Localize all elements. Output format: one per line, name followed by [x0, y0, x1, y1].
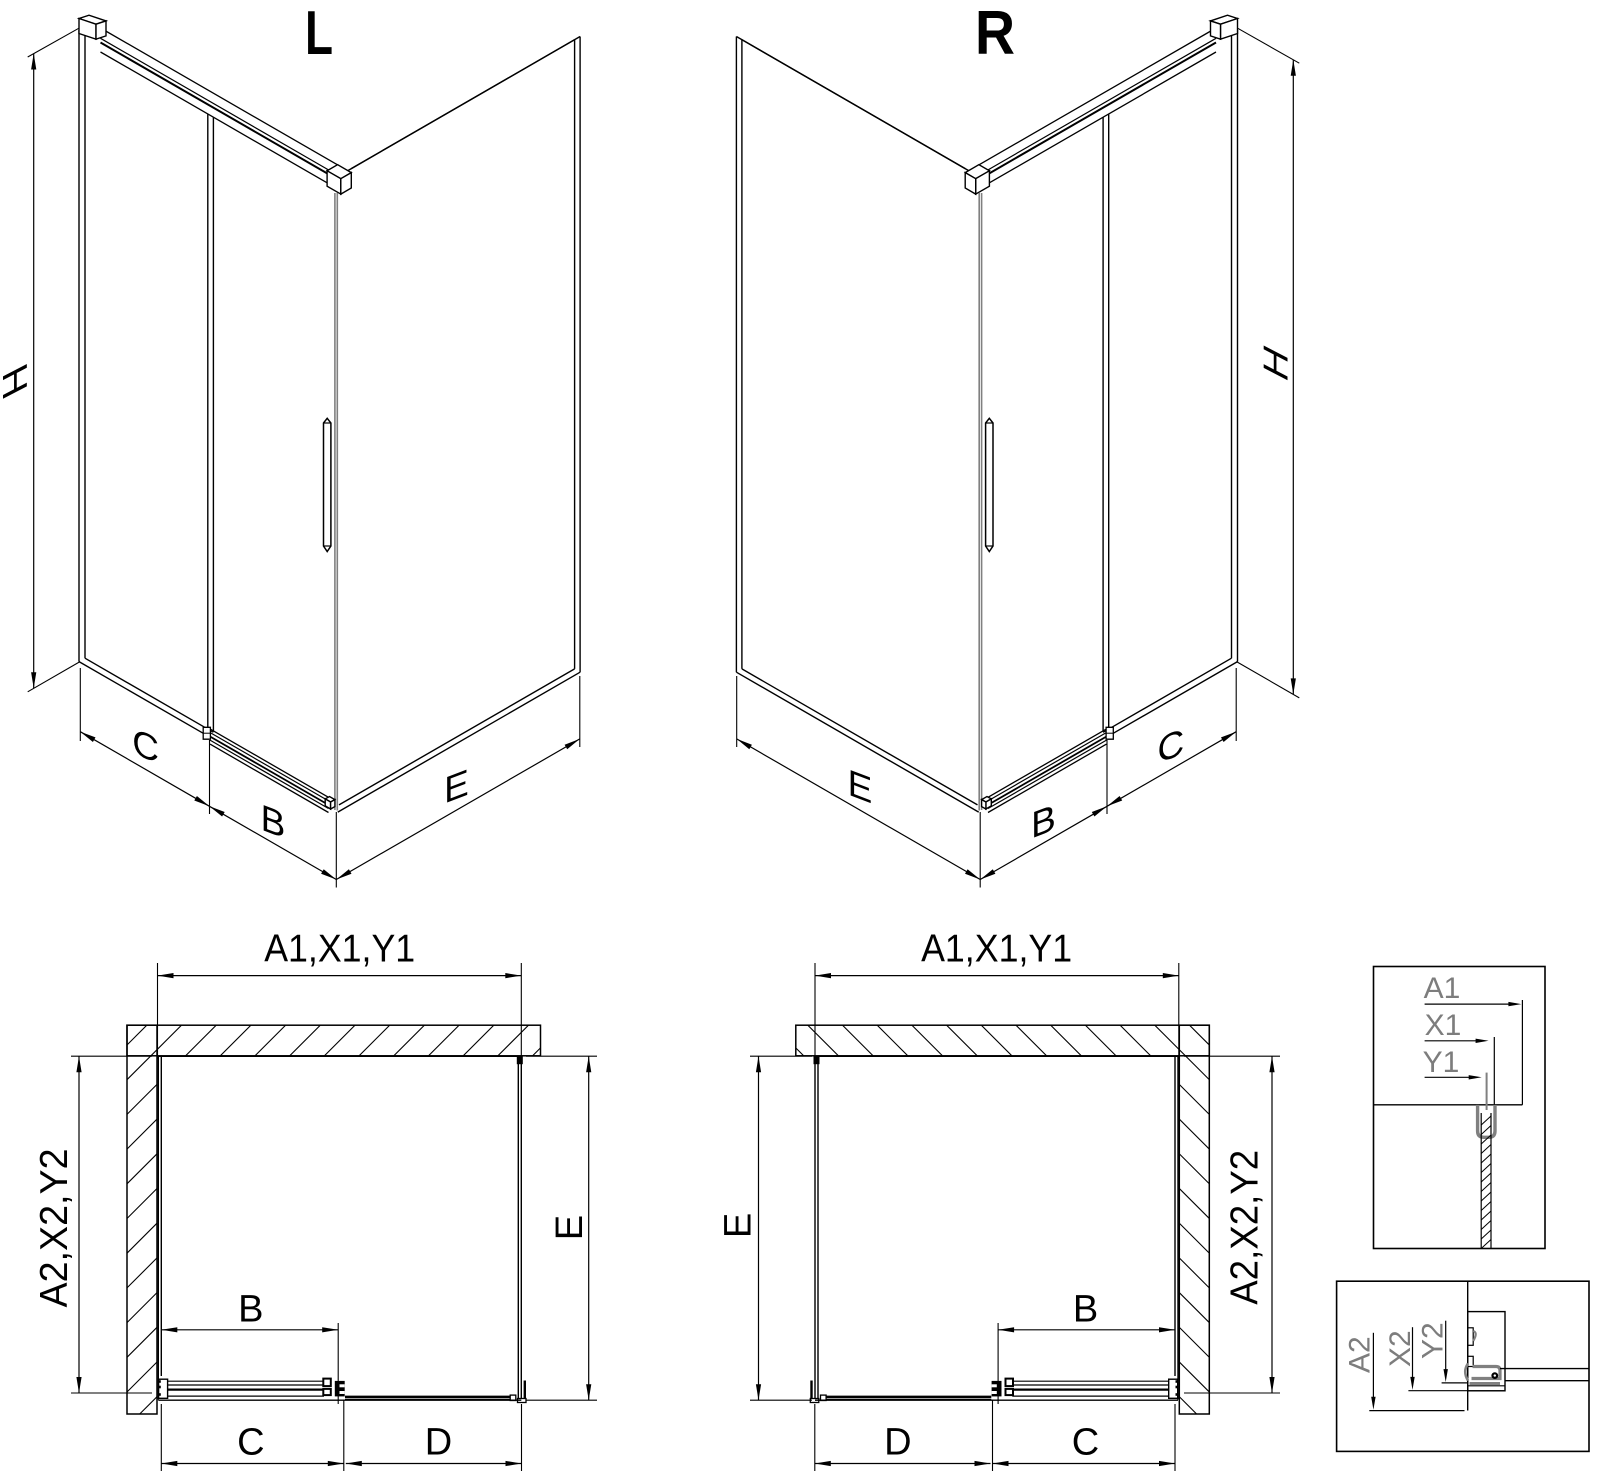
svg-text:D: D: [425, 1422, 452, 1464]
svg-text:B: B: [238, 1288, 263, 1330]
svg-text:R: R: [975, 0, 1015, 68]
svg-text:Y2: Y2: [1416, 1322, 1449, 1359]
svg-text:A1: A1: [1424, 972, 1461, 1005]
svg-text:A1,X1,Y1: A1,X1,Y1: [264, 928, 415, 971]
svg-text:Y1: Y1: [1423, 1046, 1460, 1079]
svg-text:C: C: [237, 1422, 264, 1464]
svg-text:E: E: [549, 1215, 591, 1240]
svg-text:L: L: [305, 0, 333, 68]
svg-text:X1: X1: [1425, 1009, 1462, 1042]
svg-text:A2,X2,Y2: A2,X2,Y2: [33, 1149, 76, 1308]
svg-text:C: C: [1072, 1422, 1099, 1464]
svg-text:A2,X2,Y2: A2,X2,Y2: [1224, 1150, 1267, 1305]
svg-text:A1,X1,Y1: A1,X1,Y1: [921, 928, 1072, 971]
svg-text:E: E: [718, 1213, 760, 1238]
svg-text:D: D: [884, 1422, 911, 1464]
svg-text:A2: A2: [1343, 1336, 1376, 1373]
svg-text:B: B: [1073, 1288, 1098, 1330]
